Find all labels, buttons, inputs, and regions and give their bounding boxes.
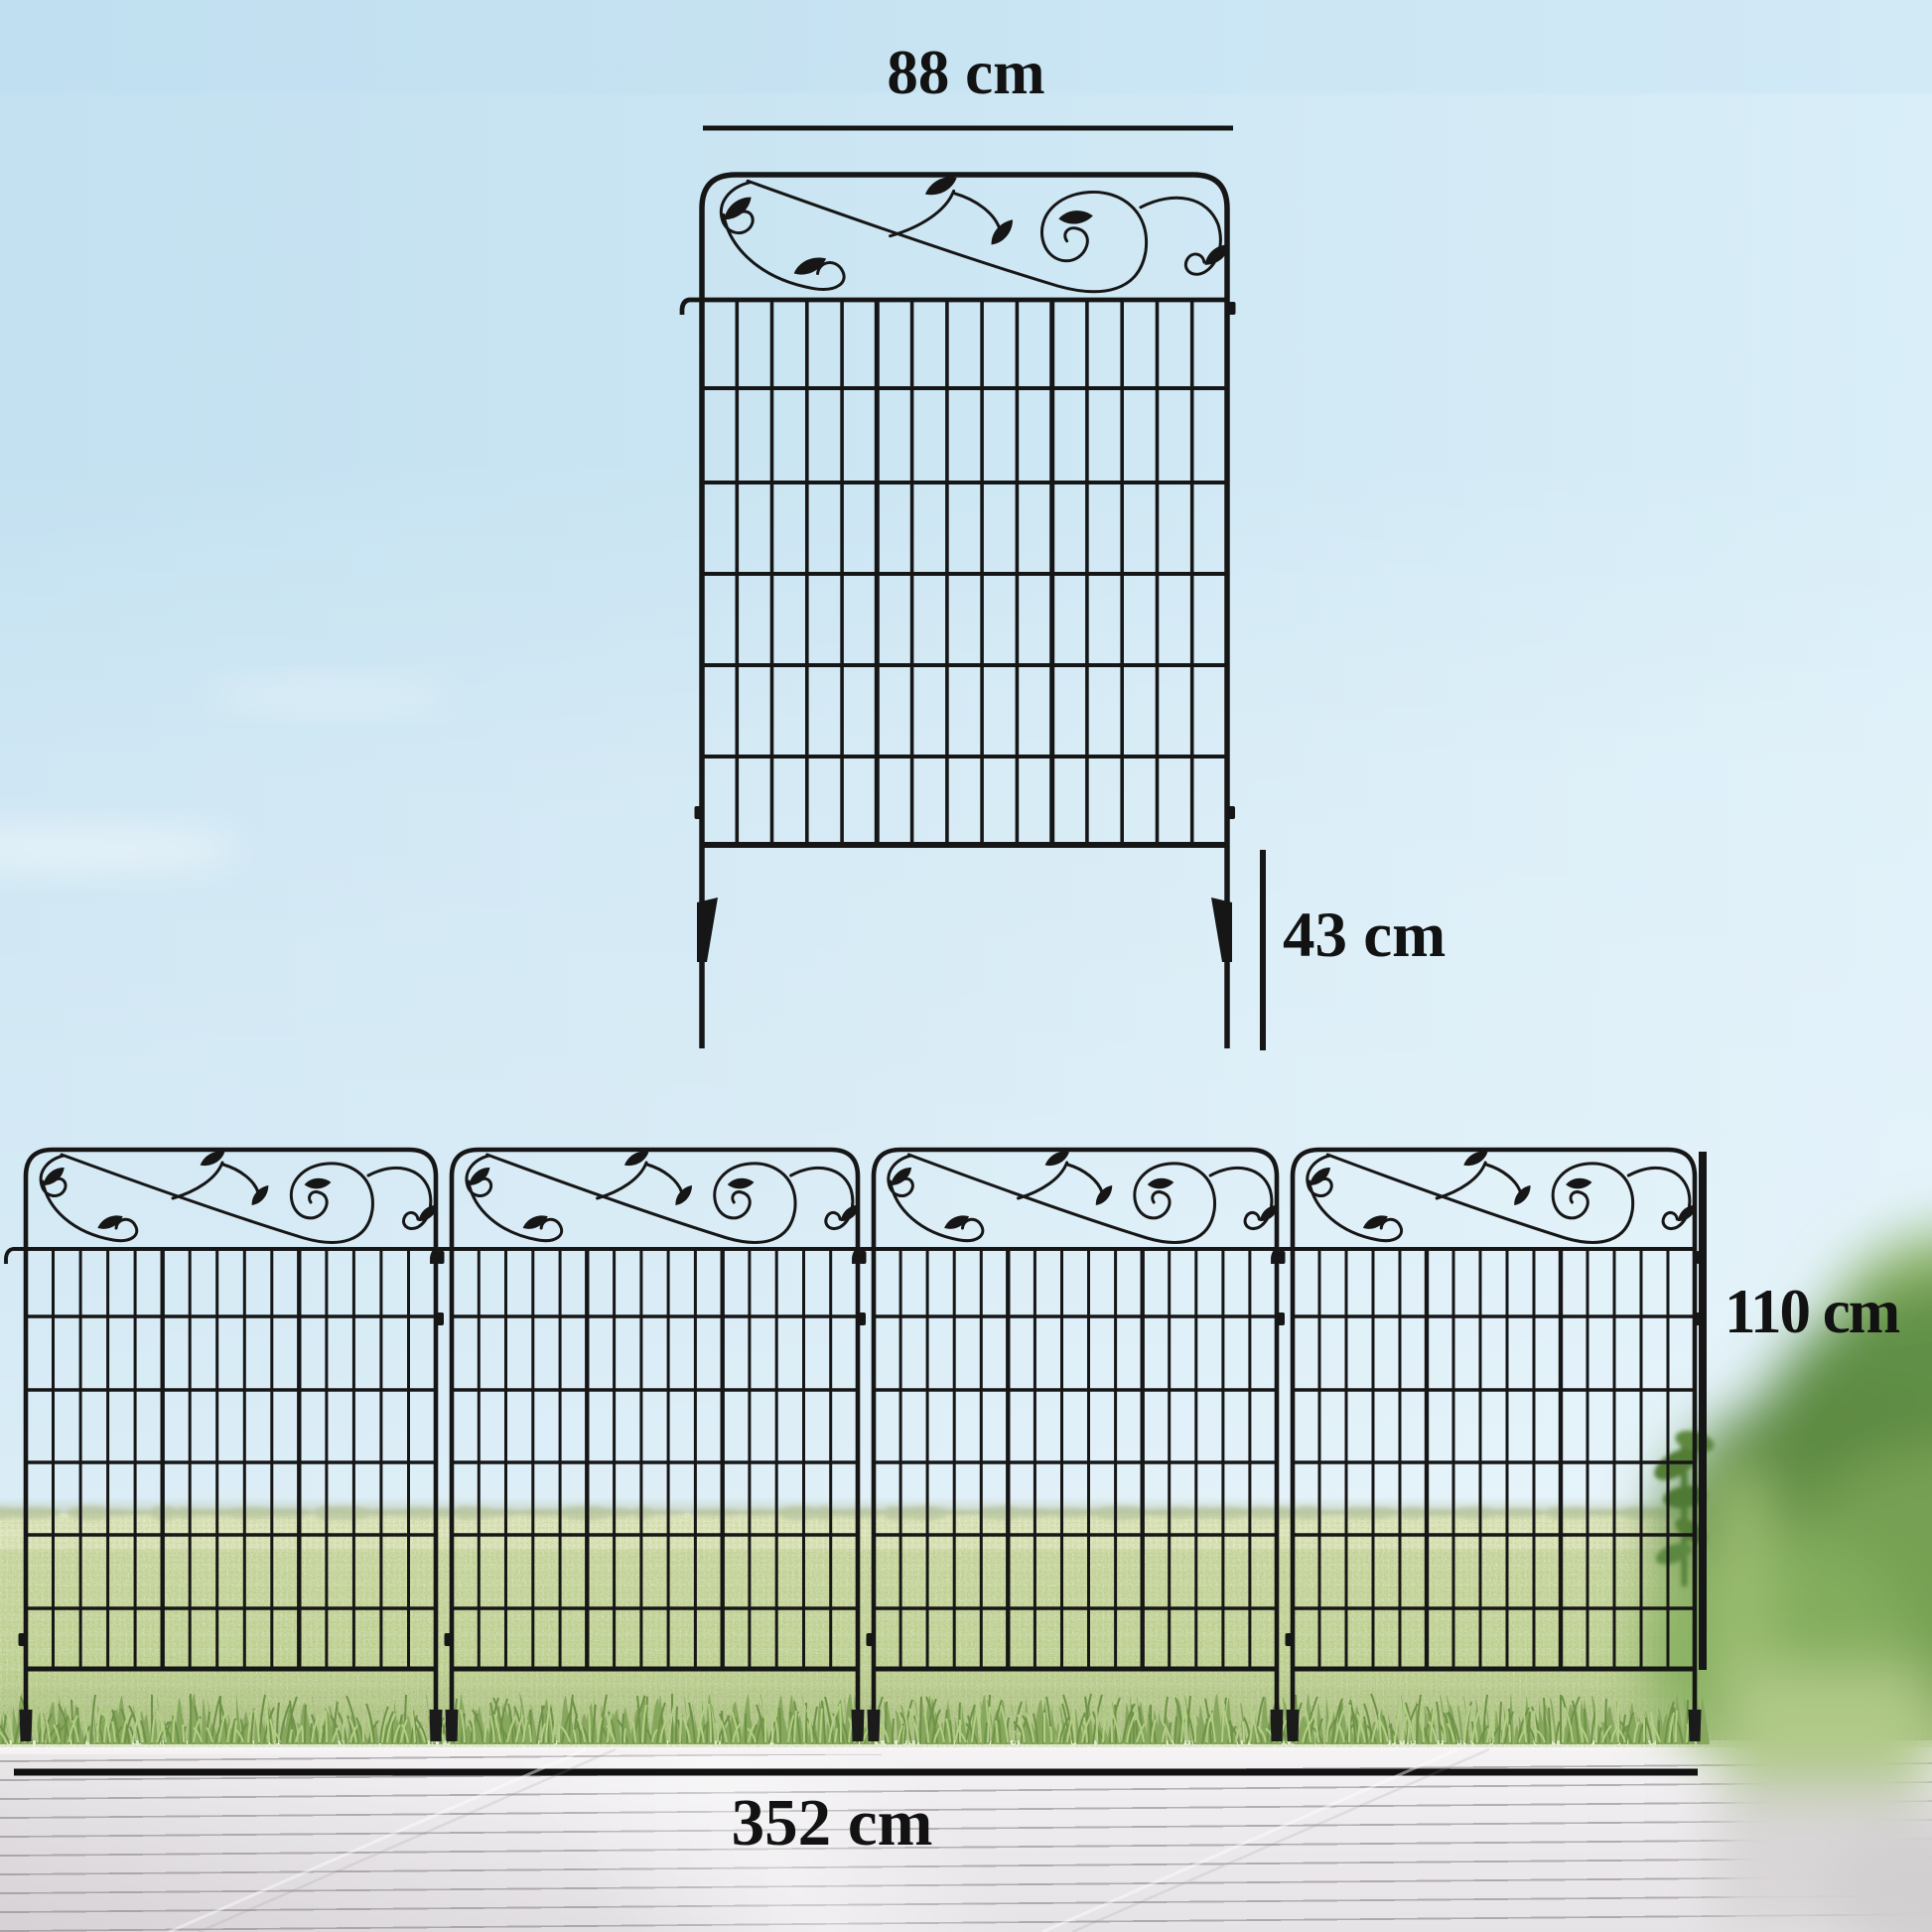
svg-text:110 cm: 110 cm	[1725, 1277, 1900, 1346]
svg-text:352 cm: 352 cm	[732, 1786, 933, 1860]
svg-text:88 cm: 88 cm	[887, 38, 1044, 107]
svg-text:43 cm: 43 cm	[1283, 899, 1446, 971]
